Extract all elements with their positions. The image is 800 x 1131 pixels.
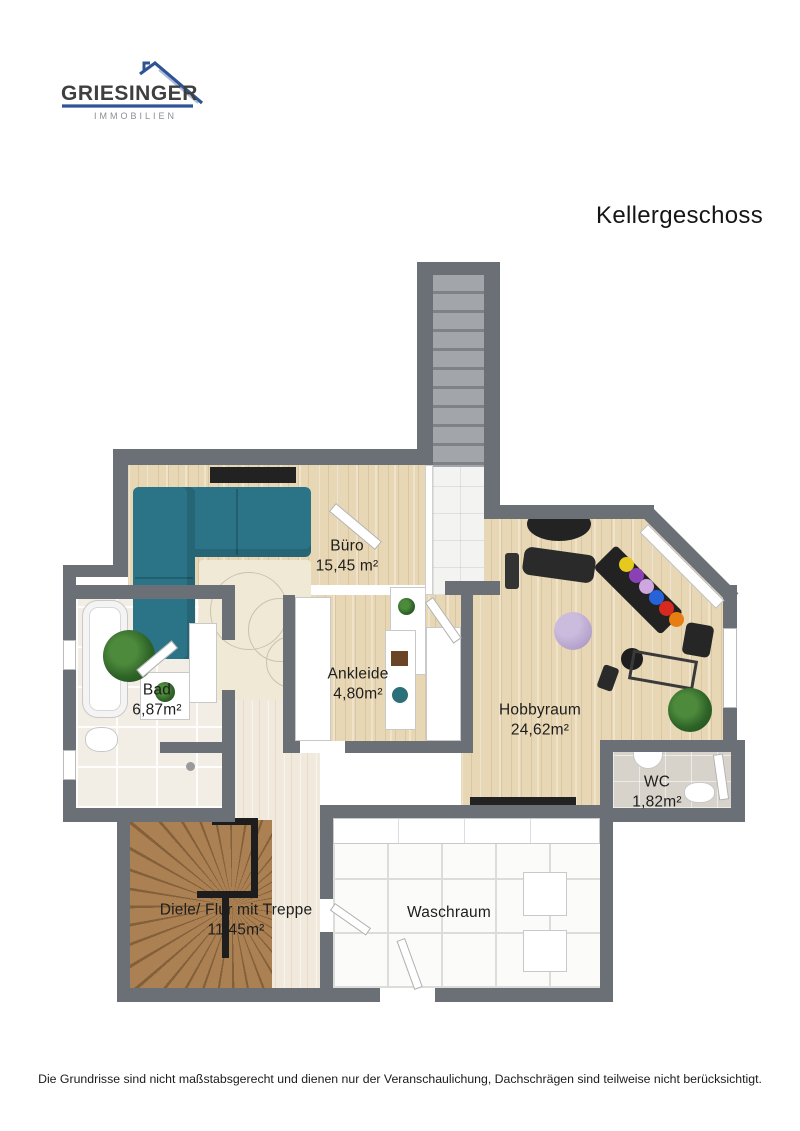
- wall-segment: [345, 741, 473, 753]
- wall-segment: [320, 805, 610, 818]
- room-name: Hobbyraum: [499, 701, 581, 721]
- ankleide-island: [385, 630, 416, 730]
- plant-hobbyraum: [668, 688, 712, 732]
- logo-name: GRIESINGER: [61, 82, 198, 105]
- counter-divider: [464, 819, 465, 843]
- wall-segment: [610, 740, 737, 752]
- exercise-ball: [554, 612, 592, 650]
- room-label-wc: WC 1,82m²: [632, 773, 681, 814]
- decor-bowl: [392, 687, 408, 703]
- staircase-upper: [433, 275, 484, 467]
- room-area: 15,45 m²: [316, 557, 379, 577]
- sofa-seam: [236, 489, 238, 555]
- wall-segment: [113, 449, 128, 577]
- room-area: 24,62m²: [499, 721, 581, 741]
- room-area: 4,80m²: [327, 685, 388, 705]
- page-title: Kellergeschoss: [596, 202, 763, 230]
- wall-segment: [113, 449, 433, 465]
- room-name: Büro: [316, 537, 379, 557]
- counter-divider: [530, 819, 531, 843]
- room-area: 6,87m²: [132, 701, 181, 721]
- wall-segment: [320, 932, 333, 994]
- wall-segment: [600, 740, 613, 1002]
- washing-machine: [523, 872, 567, 916]
- wall-segment: [417, 262, 433, 465]
- wall-segment: [63, 565, 76, 822]
- floor-mat: [470, 797, 576, 805]
- wall-segment: [283, 741, 300, 753]
- gym-weight-post: [505, 553, 519, 589]
- room-label-waschraum: Waschraum: [407, 903, 491, 923]
- toilet-wc: [684, 782, 715, 803]
- wall-segment: [484, 505, 654, 519]
- plant-dresser: [398, 598, 415, 615]
- wall-segment: [222, 690, 235, 808]
- room-label-bad: Bad 6,87m²: [132, 681, 181, 722]
- wall-segment: [117, 988, 380, 1002]
- window-bad-1: [63, 640, 76, 670]
- bathroom-vanity: [189, 623, 217, 703]
- dryer: [523, 930, 567, 972]
- wall-segment: [63, 808, 235, 822]
- wall-segment: [222, 585, 235, 640]
- logo-roof-icon: GRIESINGER IMMOBILIEN: [52, 54, 222, 124]
- room-name: Ankleide: [327, 665, 388, 685]
- gym-equipment-small: [681, 622, 714, 658]
- floor-stair-landing: [433, 465, 484, 595]
- room-area: 11,45m²: [160, 921, 313, 941]
- wall-segment: [63, 585, 235, 599]
- wall-segment: [461, 581, 473, 753]
- counter-divider: [398, 819, 399, 843]
- wall-segment: [117, 808, 130, 1002]
- room-name: WC: [632, 773, 681, 793]
- decor-box: [391, 651, 408, 666]
- floor-plan-page: GRIESINGER IMMOBILIEN Kellergeschoss: [0, 0, 800, 1131]
- disclaimer-text: Die Grundrisse sind nicht maßstabsgerech…: [0, 1072, 800, 1086]
- window-hobbyraum: [723, 628, 737, 708]
- media-shelf: [210, 467, 296, 483]
- wall-partition-landing: [425, 465, 433, 595]
- room-label-diele: Diele/ Flur mit Treppe 11,45m²: [160, 901, 313, 942]
- company-logo: GRIESINGER IMMOBILIEN: [52, 54, 222, 124]
- toilet-bad: [85, 727, 118, 752]
- wall-segment: [283, 595, 295, 753]
- room-label-buero: Büro 15,45 m²: [316, 537, 379, 578]
- wall-segment: [435, 988, 613, 1002]
- room-label-hobbyraum: Hobbyraum 24,62m²: [499, 701, 581, 742]
- room-name: Waschraum: [407, 903, 491, 923]
- wall-shower-divider: [160, 742, 222, 753]
- window-bad-2: [63, 750, 76, 780]
- room-name: Bad: [132, 681, 181, 701]
- wall-segment: [320, 805, 333, 899]
- sofa-seam: [135, 577, 193, 579]
- wall-segment: [484, 262, 500, 507]
- wall-segment: [445, 581, 500, 595]
- room-area: 1,82m²: [632, 793, 681, 813]
- room-label-ankleide: Ankleide 4,80m²: [327, 665, 388, 706]
- laundry-counter: [333, 818, 600, 844]
- wardrobe-right: [426, 627, 461, 741]
- plant-buero: [103, 630, 155, 682]
- medicine-ball-orange: [669, 612, 684, 627]
- logo-subtitle: IMMOBILIEN: [94, 111, 177, 121]
- stair-trim: [251, 818, 258, 898]
- shower-head: [186, 762, 195, 771]
- wall-segment: [731, 740, 745, 822]
- wardrobe-left: [295, 597, 331, 741]
- room-name: Diele/ Flur mit Treppe: [160, 901, 313, 921]
